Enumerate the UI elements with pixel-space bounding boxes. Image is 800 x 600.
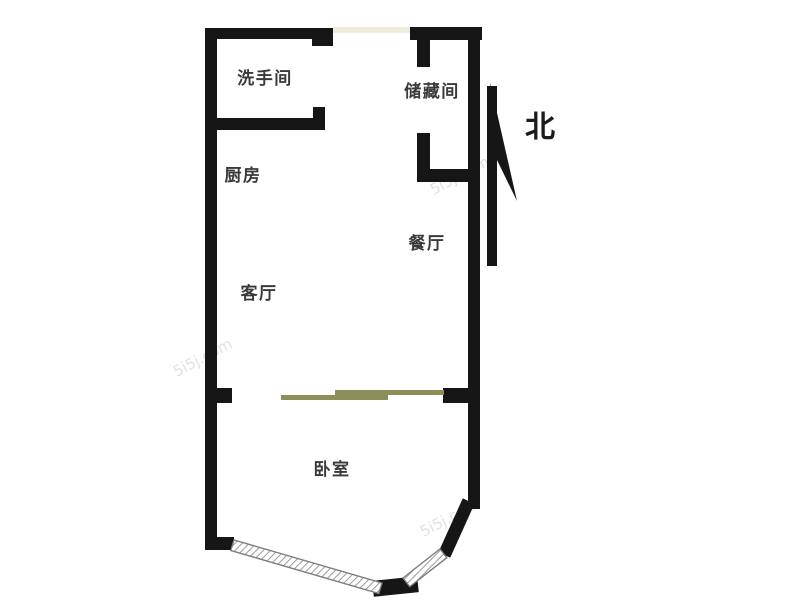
wall-storage-bottom [417,169,468,182]
sliding-door-panel-upper [335,390,444,395]
floorplan-canvas: 5i5j.com 5i5j.com 5i5j.com [0,0,800,600]
room-label-dining: 餐厅 [409,233,446,254]
wall-bedroom-stub-left [205,388,232,403]
walls [205,27,482,588]
room-label-kitchen: 厨房 [225,165,262,186]
sliding-door [281,390,444,400]
bay-window-right [403,549,447,587]
wall-left [205,28,217,550]
north-label: 北 [525,110,555,145]
wall-top-left-stub [312,36,333,46]
wall-right [468,27,480,509]
wall-bedroom-stub-right [443,388,480,403]
room-label-storage: 储藏间 [404,81,460,102]
sliding-door-panel-lower [281,395,388,400]
wall-bottom-left-stub [205,537,234,550]
entry-opening [333,27,410,33]
room-label-bedroom: 卧室 [314,459,351,480]
floorplan-image: 5i5j.com 5i5j.com 5i5j.com [0,0,800,600]
wall-storage-left-upper [417,40,430,67]
wall-bay-bottom [381,585,410,588]
room-label-washroom: 洗手间 [237,68,293,89]
north-arrow-icon [487,82,517,266]
room-label-living: 客厅 [240,283,278,304]
bay-window-left [231,540,382,594]
wall-washroom-bottom [205,118,325,130]
watermark-text: 5i5j.com 5i5j.com 5i5j.com [170,153,492,541]
wall-washroom-jamb [313,107,325,130]
watermark-instance: 5i5j.com [170,335,235,381]
